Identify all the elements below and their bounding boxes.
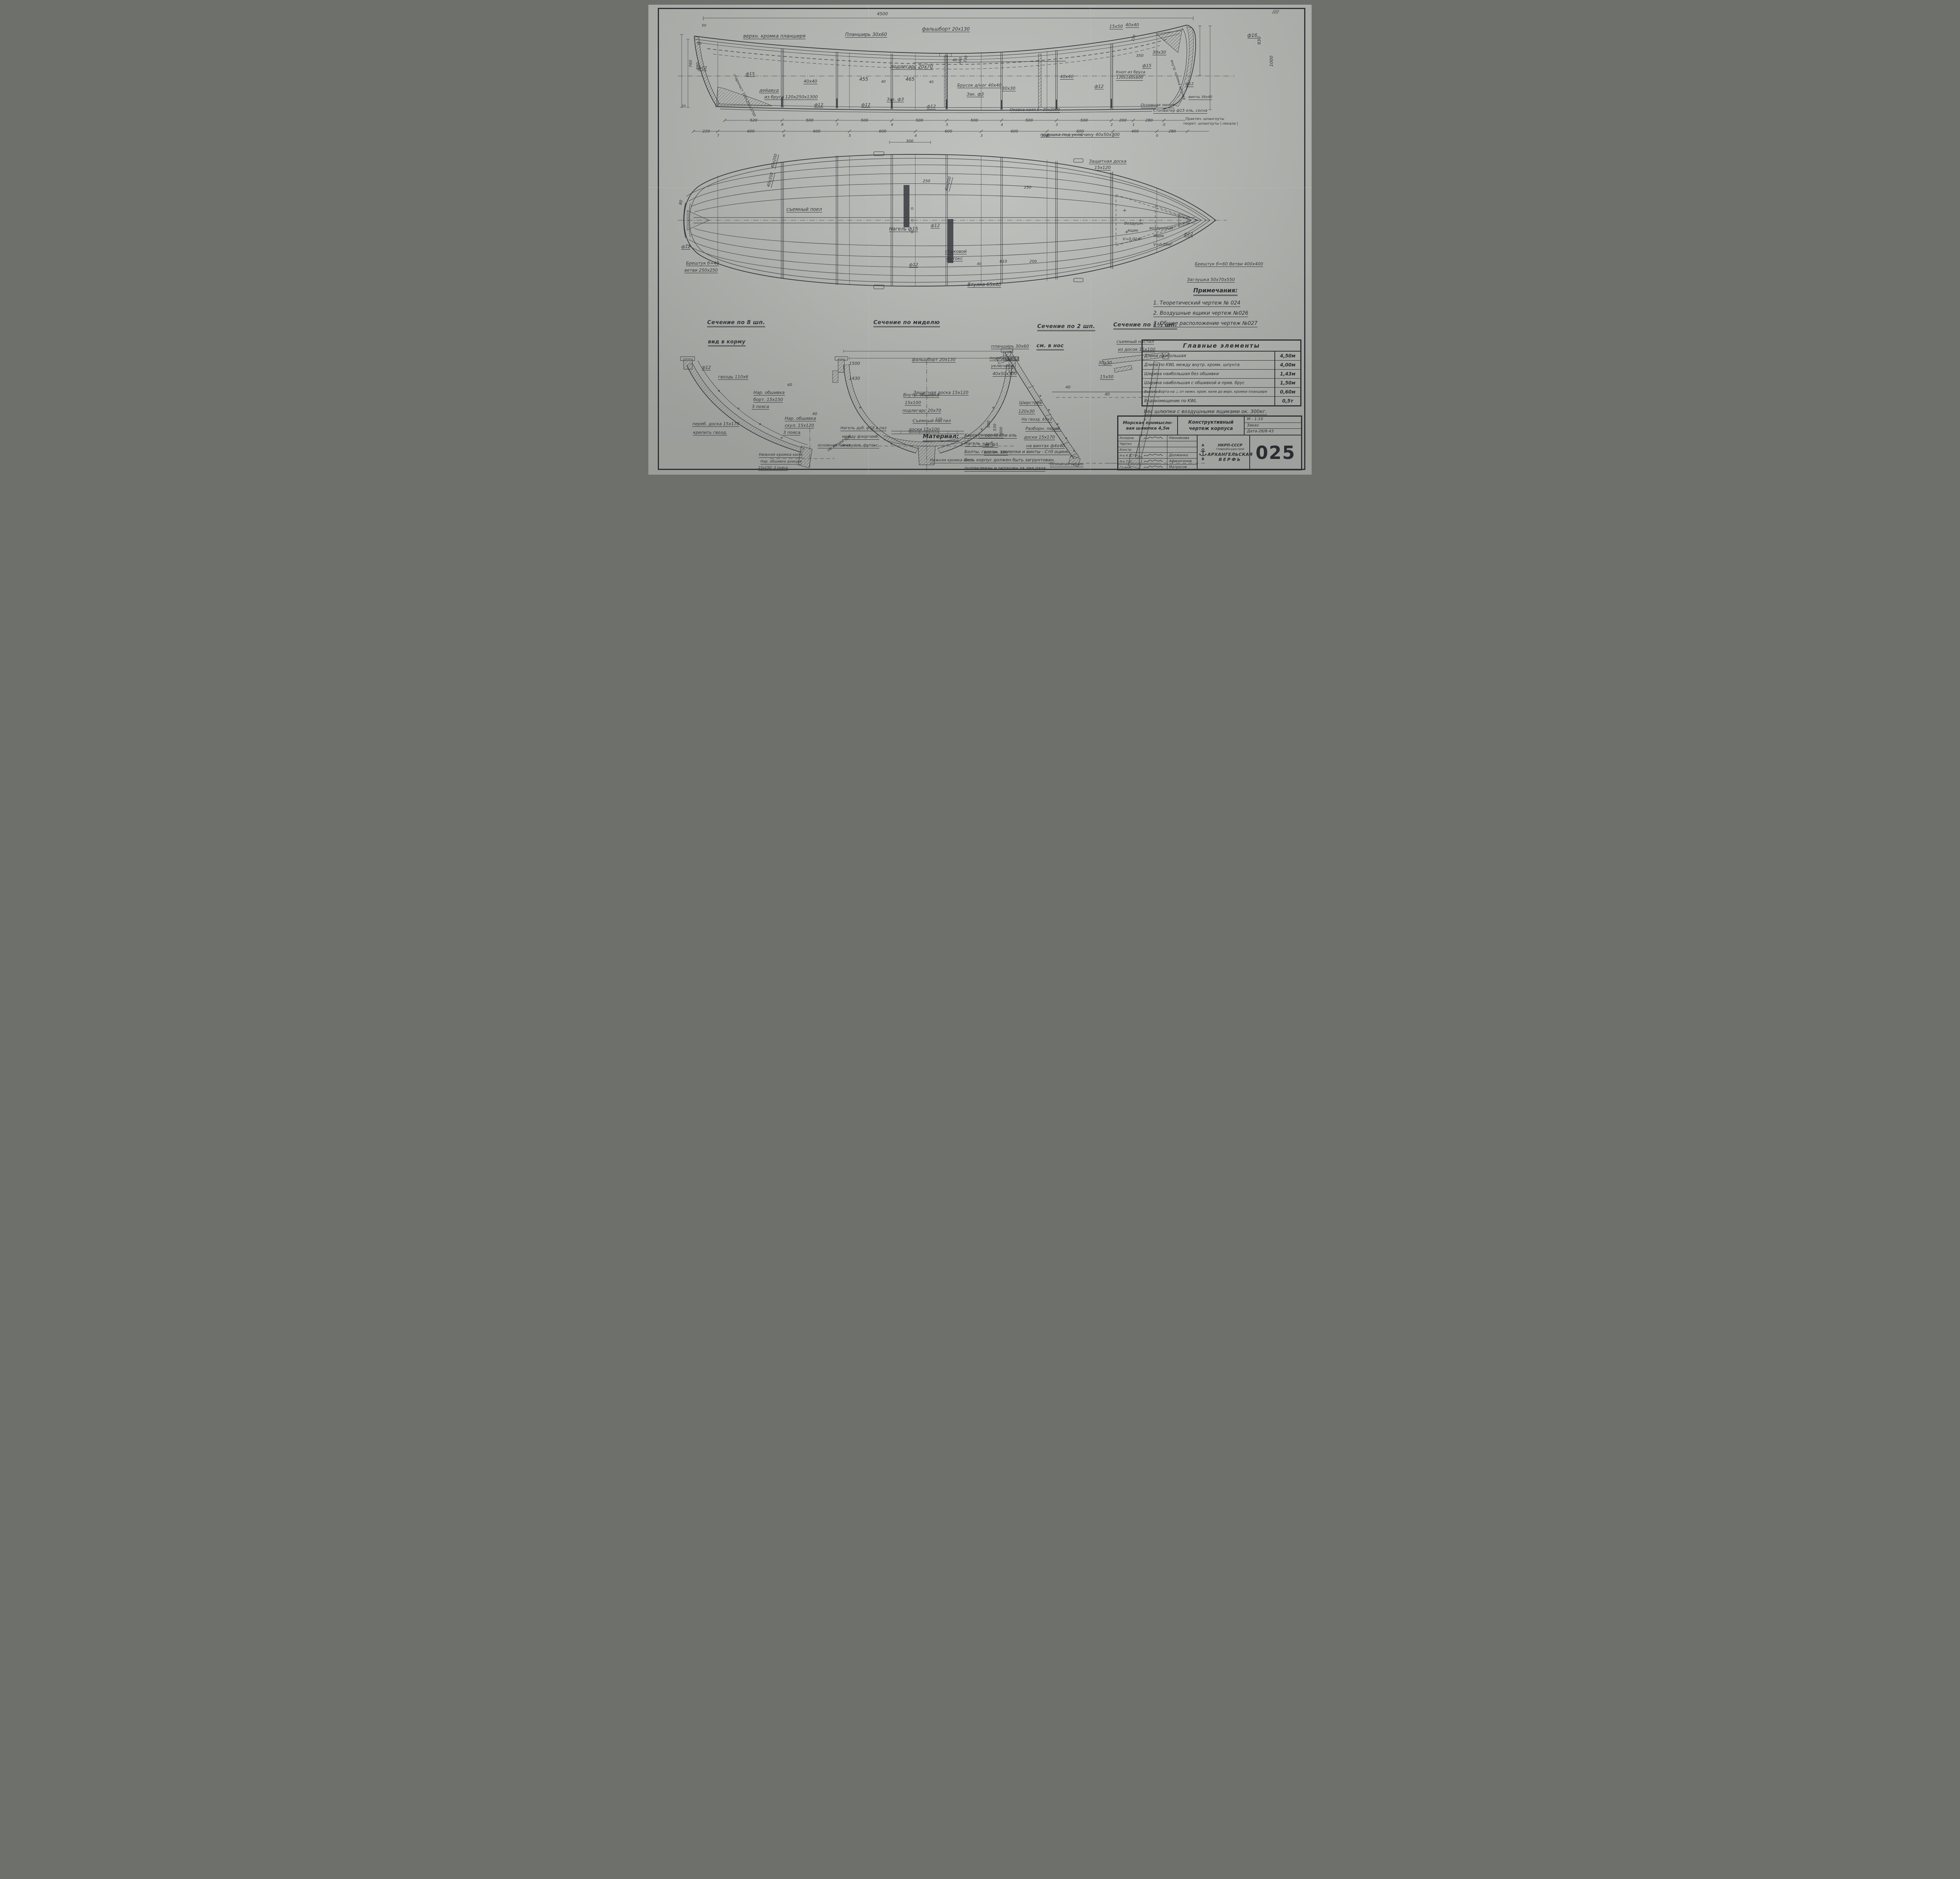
dimension-label: 610: [1000, 260, 1007, 264]
drawing-name-line2: чертеж корпуса: [1178, 426, 1244, 432]
dimension-label: 200: [1029, 260, 1037, 264]
drawing-label: Защитная доска: [1089, 159, 1127, 164]
dimension-label: 1000: [1269, 56, 1274, 67]
notes-title: Примечания:: [1193, 287, 1238, 296]
drawing-label: Планширь 30x60: [845, 32, 887, 38]
drawing-label: ∕∕∕∕: [1272, 9, 1279, 14]
dimension-label: 40: [1105, 393, 1110, 397]
drawing-label: уключины: [991, 364, 1014, 369]
dimension-label: 5: [849, 134, 851, 138]
dimension-label: 120: [935, 418, 942, 421]
drawing-label: основная линия: [818, 444, 851, 448]
drawing-label: футокс: [946, 256, 963, 261]
note-item: 2. Воздушные ящики чертеж №026: [1153, 310, 1248, 317]
drawing-label: ф12: [681, 245, 690, 250]
dimension-label: 760: [689, 60, 693, 67]
drawing-label: ф12: [698, 66, 707, 71]
drawing-label: 40x40: [1125, 23, 1139, 28]
organization-text: НКРП-СССР Главрыбосудострой АРХАНГЕЛЬСКА…: [1207, 437, 1252, 469]
title-block-header: Морская промысло- вая шлюпка 4,5м Констр…: [1118, 417, 1301, 435]
signature-role: Н-к Т.О.: [1118, 459, 1140, 464]
drawing-label: подушка под уключину 40x50x300: [1040, 132, 1120, 138]
notes-list: 1. Теоретический чертеж № 0242. Воздушны…: [1153, 300, 1258, 331]
drawing-label: Оковка киля б=30x2000: [1010, 108, 1060, 113]
drawing-name: Конструктивный чертеж корпуса: [1178, 417, 1245, 435]
signature-scribble: [1140, 447, 1167, 453]
dimension-label: 930: [1257, 36, 1261, 45]
org-line3: АРХАНГЕЛЬСКАЯ: [1207, 452, 1252, 457]
material-note: Материал: Корпус - сосна или ельНагель -…: [923, 433, 1070, 474]
dimension-label: 4500: [877, 12, 888, 16]
paper-crease: [1090, 5, 1091, 475]
drawing-label: ф12: [909, 263, 918, 268]
dimension-label: 180: [958, 57, 963, 64]
drawing-label: ф15: [746, 72, 755, 77]
drawing-label: фальшборт 20x130: [912, 357, 956, 363]
dimension-label: 500: [987, 421, 991, 428]
dimension-label: 8: [781, 123, 784, 127]
dimension-label: 7: [836, 123, 838, 127]
dimension-label: 600: [813, 130, 820, 134]
dimension-label: 7: [717, 134, 719, 138]
dimension-label: 40: [812, 412, 817, 416]
signature-role: Копиров.: [1118, 435, 1140, 441]
drawing-label: 40x40: [1060, 74, 1074, 80]
drawing-label: 15x100: [905, 401, 921, 406]
drawing-label: подлегарс 20x70: [902, 408, 941, 414]
drawing-label: верхн. кромка планширя: [743, 34, 806, 39]
dimension-label: 40: [1065, 386, 1071, 390]
section-title: Сечение по миделю: [873, 320, 940, 327]
table-row-label: Длина по KWL между внутр. кромк. шпунта: [1143, 362, 1274, 368]
scale-label: М - 1:10: [1245, 417, 1301, 423]
signature-role: Констр.: [1118, 447, 1140, 453]
note-item: 1. Теоретический чертеж № 024: [1153, 300, 1240, 307]
drawing-meta: М - 1:10 Заказ Дата-28/8-43: [1245, 417, 1301, 435]
drawing-label: Защитная доска 15x120: [913, 390, 969, 395]
drawing-label: ящик: [1127, 229, 1138, 233]
order-label: Заказ: [1245, 423, 1301, 429]
table-row: Ширина наибольшая без обшивки1,43м: [1143, 370, 1300, 379]
dimension-label: 1: [1112, 134, 1114, 138]
dimension-label: 500: [916, 119, 923, 123]
drawing-label: Съемный настил: [913, 419, 951, 424]
plan-view-drawing: [670, 136, 1230, 305]
dimension-label: 40: [953, 59, 957, 62]
drawing-label: 40x350: [767, 172, 775, 188]
drawing-label: 3 пояса: [752, 404, 769, 410]
drawing-label: Нар. обшивка днищев: [760, 460, 802, 464]
dimension-label: 1500: [849, 361, 860, 366]
drawing-label: 40x40: [804, 79, 817, 84]
dimension-label: 50: [702, 24, 706, 28]
material-line: Нагель - дуб: [964, 441, 993, 447]
table-row-value: 0,5т: [1274, 397, 1300, 405]
dimension-label: 350: [1136, 54, 1143, 58]
table-row: Ширина наибольшая с обшивкой и прив. бру…: [1143, 379, 1300, 388]
section-frame8-drawing: [672, 354, 837, 471]
dimension-label: 1: [1132, 123, 1135, 127]
drawing-label: ф12: [1094, 84, 1103, 89]
side-view-drawing: [670, 16, 1258, 140]
drawing-label: гвоздь 110x6: [718, 375, 748, 380]
table-body: Длина наибольшая4,50мДлина по KWL между …: [1143, 352, 1300, 405]
drawing-label: Нар. обшивка: [753, 390, 785, 395]
dimension-label: 250: [923, 180, 930, 183]
dimension-label: 40: [881, 80, 886, 84]
drawing-label: Нагель дуб. ф15 в паз: [840, 426, 886, 431]
titleblock-signature-row: Н-к К.Б.Долженко: [1118, 453, 1197, 459]
signature-scribble: [1140, 459, 1167, 464]
drawing-label: из бруса 120x250x1300: [764, 95, 818, 100]
drawing-label: Втулка 65x40: [967, 282, 1001, 288]
drawing-label: борт. 15x150: [753, 397, 783, 403]
drawing-label: ф12: [927, 104, 936, 109]
drawing-label: 15x50: [1109, 24, 1123, 29]
drawing-label: 40x200: [945, 176, 953, 192]
drawing-label: фальшборт 20x130: [922, 27, 970, 32]
drawing-label: ф12: [931, 223, 940, 229]
drawing-label: Зак. ф3: [887, 97, 904, 102]
drawing-label: 30x30: [1152, 50, 1166, 55]
table-row-value: 4,00м: [1274, 361, 1300, 369]
table-row-value: 4,50м: [1274, 352, 1300, 360]
drawing-label: дейдвуд: [759, 88, 779, 93]
signature-role: Н-к К.Б.: [1118, 453, 1140, 458]
dimension-label: 500: [1080, 119, 1088, 123]
title-block-body: Копиров.НянниковаЧертилКонстр.Н-к К.Б.До…: [1118, 435, 1301, 470]
drawing-label: крепить гвозд.: [693, 430, 727, 435]
drawing-label: Внутр. обшивка: [903, 393, 939, 398]
titleblock-signature-row: Гл.инж.Матросов: [1118, 464, 1197, 470]
dimension-label: 70: [681, 105, 686, 109]
project-name-line2: вая шлюпка 4,5м: [1118, 426, 1177, 431]
drawing-label: стыковой: [945, 249, 967, 254]
drawing-label: На гвозд. 65x3: [1022, 418, 1052, 423]
dimension-label: 600: [1011, 130, 1018, 134]
note-item: 3. Общее расположение чертеж №027: [1153, 321, 1258, 327]
drawing-label: ф12: [814, 103, 823, 108]
material-line: Болты, гвозди, заклепки и винты - Ст0 оц…: [964, 449, 1069, 455]
signature-name: Долженко: [1167, 453, 1197, 457]
dimension-label: 600: [1076, 130, 1084, 134]
section-title: вид в корму: [708, 339, 746, 346]
drawing-label: Заглушка 50x70x550: [1187, 277, 1235, 283]
dimension-label: 130: [964, 55, 969, 63]
dimension-label: 220: [702, 130, 710, 134]
drawing-label: между флортимб.: [842, 435, 879, 440]
titleblock-signature-row: Н-к Т.О.Афиногенов: [1118, 459, 1197, 464]
drawing-label: планширь 30x60: [991, 344, 1029, 349]
dimension-label: 1430: [849, 376, 860, 381]
dimension-label: 280: [1169, 130, 1176, 134]
dimension-label: 200: [1119, 119, 1127, 123]
drawing-label: винты 36x40: [1189, 96, 1212, 100]
drawing-label: переб. доска 15x170: [692, 422, 739, 427]
signature-table: Копиров.НянниковаЧертилКонстр.Н-к К.Б.До…: [1118, 435, 1198, 470]
drawing-label: ф12: [1185, 82, 1194, 87]
drawing-label: доски 15x100: [909, 427, 940, 432]
dimension-label: 280: [1145, 119, 1153, 123]
dimension-label: 500: [971, 119, 978, 123]
drawing-label: подлегарс 20x70: [891, 64, 933, 70]
signature-name: Афиногенов: [1167, 459, 1197, 463]
dimension-label: 3: [1056, 123, 1058, 127]
drawing-label: Брештук б=40: [686, 261, 719, 266]
drawing-label: съемный поел: [786, 207, 822, 212]
drawing-number: 025: [1250, 435, 1301, 470]
table-title: Главные элементы: [1143, 341, 1300, 352]
date-label: Дата-28/8-43: [1245, 429, 1301, 435]
drawing-label: 30x30: [1002, 86, 1016, 91]
paper-crease: [648, 187, 1312, 188]
table-row-value: 1,50м: [1274, 379, 1300, 387]
titleblock-signature-row: Констр.: [1118, 447, 1197, 453]
dimension-label: 300: [906, 140, 913, 143]
drawing-label: Брусок д/ног 40x40: [957, 83, 1002, 88]
material-line: Весь корпус должен быть загрунтован,: [964, 457, 1055, 463]
drawing-label: ф16: [1247, 33, 1258, 38]
titleblock-signature-row: Копиров.Нянникова: [1118, 435, 1197, 441]
section-title: Сечение по 8 шп.: [707, 320, 765, 327]
dimension-label: 600: [945, 130, 952, 134]
table-row: Водоизмещение по KWL0,5т: [1143, 397, 1300, 405]
weight-note: Вес шлюпки с воздушными ящиками ок. 300к…: [1144, 408, 1267, 415]
drawing-label: скул. 15x120: [785, 423, 814, 428]
dimension-label: 690: [696, 62, 700, 70]
dimension-label: 0: [1163, 123, 1165, 127]
org-line4: ВЕРФЬ: [1219, 457, 1241, 462]
drawing-label: 15x150; 3 пояса: [758, 466, 788, 471]
dimension-label: 40: [977, 263, 981, 266]
drawing-label: Разборн. переб.: [1025, 426, 1062, 432]
dimension-label: 455: [859, 77, 868, 82]
material-line: Корпус - сосна или ель: [964, 433, 1017, 439]
table-row-value: 0,60м: [1274, 388, 1300, 396]
project-name: Морская промысло- вая шлюпка 4,5м: [1118, 417, 1178, 435]
drawing-label: 3 пояса: [783, 430, 800, 435]
dimension-label: 3: [980, 134, 983, 138]
drawing-label: не менее 500: [827, 435, 852, 453]
dimension-label: 0: [1156, 134, 1158, 138]
signature-scribble: [1140, 435, 1167, 441]
drawing-label: 120x160x800: [1116, 76, 1143, 81]
project-name-line1: Морская промысло-: [1118, 420, 1177, 426]
dimension-label: 5: [946, 123, 948, 127]
signature-name: Нянникова: [1167, 436, 1197, 440]
table-row: Высота борта на ⊥ от нижн. кром. киля до…: [1143, 388, 1300, 397]
table-row-label: Водоизмещение по KWL: [1143, 398, 1274, 404]
table-row-label: Ширина наибольшая с обшивкой и прив. бру…: [1143, 380, 1274, 386]
drawing-label: 15x120: [1094, 165, 1111, 170]
drawing-label: теорет. шпангоуты | лекала |: [1183, 122, 1238, 126]
drawing-label: 40x200: [771, 154, 779, 169]
drawing-label: 40x50x300: [993, 372, 1017, 377]
drawing-label: Практич. шпангоуты: [1185, 118, 1224, 121]
section-title: см. в нос: [1036, 343, 1064, 350]
table-row-label: Длина наибольшая: [1143, 353, 1274, 359]
drawing-label: Нагель ф15: [889, 227, 918, 232]
drawing-label: ф12: [702, 365, 711, 370]
dimension-label: 40: [929, 81, 933, 84]
material-lines: Корпус - сосна или ельНагель - дубБолты,…: [964, 433, 1069, 474]
drawing-label: ветви 250x250: [684, 268, 718, 273]
logo-letter-b: В: [1201, 458, 1204, 461]
dimension-label: 500: [1025, 119, 1033, 123]
drawing-label: 30x30: [1098, 361, 1112, 366]
material-label: Материал:: [923, 433, 959, 442]
main-elements-table: Главные элементы Длина наибольшая4,50мДл…: [1142, 339, 1301, 406]
dimension-label: 80: [679, 200, 684, 205]
dimension-label: 40: [787, 383, 792, 387]
table-row-value: 1,43м: [1274, 370, 1300, 378]
dimension-label: 2: [1046, 134, 1049, 138]
paper-crease: [868, 5, 869, 475]
drawing-label: 15x50: [1100, 375, 1114, 380]
dimension-label: 6: [891, 123, 893, 127]
title-block: Морская промысло- вая шлюпка 4,5м Констр…: [1117, 415, 1302, 470]
drawing-label: Зак. ф3: [967, 92, 984, 97]
dimension-label: 4: [1001, 123, 1003, 127]
signature-role: Гл.инж.: [1118, 464, 1140, 470]
anchor-icon: ⚓: [1198, 448, 1207, 458]
drawing-name-line1: Конструктивный: [1178, 419, 1244, 426]
signature-name: Матросов: [1167, 465, 1197, 469]
drawing-label: внутр. кромка шпунта: [1169, 60, 1185, 100]
signature-scribble: [1140, 464, 1167, 470]
drawing-label: Кноп из бруса: [1116, 71, 1145, 75]
drawing-label: V=0,05м³: [1153, 243, 1172, 247]
signature-role: Чертил: [1118, 441, 1140, 447]
drawing-label: Нар. обшивка: [785, 416, 816, 421]
drawing-label: подушка под: [989, 356, 1020, 361]
dimension-label: 500: [861, 119, 868, 123]
drawing-label: воздушный: [1149, 227, 1173, 230]
drawing-label: Брештук б=60 Ветви 400x400: [1195, 262, 1263, 267]
drawing-label: старнпост 100x200x1700: [732, 74, 756, 118]
drawing-label: Стопватер ф15 ель, сосна: [1153, 109, 1207, 114]
dimension-label: 6: [783, 134, 785, 138]
dimension-label: 150: [1131, 34, 1137, 42]
table-row: Длина наибольшая4,50м: [1143, 352, 1300, 361]
drawing-label: ф15: [1142, 63, 1151, 69]
table-row: Длина по KWL между внутр. кромк. шпунта4…: [1143, 361, 1300, 370]
dimension-label: 300: [1041, 134, 1048, 138]
dimension-label: 465: [906, 77, 915, 82]
drawing-label: Основная линия: [1141, 103, 1174, 108]
dimension-label: 50: [697, 42, 701, 46]
dimension-label: 400: [1131, 130, 1139, 134]
table-row-label: Высота борта на ⊥ от нижн. кром. киля до…: [1143, 389, 1274, 395]
section-title: Сечение по 2 шп.: [1037, 324, 1095, 331]
drawing-label: ф12: [1184, 232, 1193, 237]
signature-scribble: [1140, 441, 1167, 447]
dimension-label: 600: [879, 130, 886, 134]
dimension-label: 530: [993, 424, 997, 431]
signature-scribble: [1140, 453, 1167, 458]
drawing-label: Ширстрек: [1019, 401, 1042, 406]
org-line1: НКРП-СССР: [1218, 443, 1242, 448]
org-line2: Главрыбосудострой: [1216, 448, 1244, 451]
table-row-label: Ширина наибольшая без обшивки: [1143, 371, 1274, 377]
dimension-label: 520: [750, 119, 757, 123]
drawing-label: Воздушн.: [1124, 222, 1144, 226]
dimension-label: 2: [1111, 123, 1113, 127]
titleblock-signature-row: Чертил: [1118, 441, 1197, 447]
organization-cell: А ⚓ В НКРП-СССР Главрыбосудострой АРХАНГ…: [1198, 435, 1250, 470]
dimension-label: 4: [915, 134, 917, 138]
drawing-label: V=0,01м³: [1123, 238, 1142, 241]
drawing-label: ящик: [1153, 234, 1164, 238]
material-line: ошпаклеван и окрашен за два раза: [964, 466, 1045, 472]
drawing-label: Нижняя кромка киля: [759, 453, 802, 458]
dimension-label: 500: [806, 119, 813, 123]
drawing-label: 120x30: [1018, 409, 1035, 414]
drawing-label: и скулов. футокс.: [843, 444, 879, 448]
dimension-label: 600: [747, 130, 755, 134]
blueprint-sheet: 4500верхн. кромка планширяПланширь 30x60…: [648, 5, 1312, 475]
shipyard-logo: А ⚓ В: [1198, 437, 1207, 469]
